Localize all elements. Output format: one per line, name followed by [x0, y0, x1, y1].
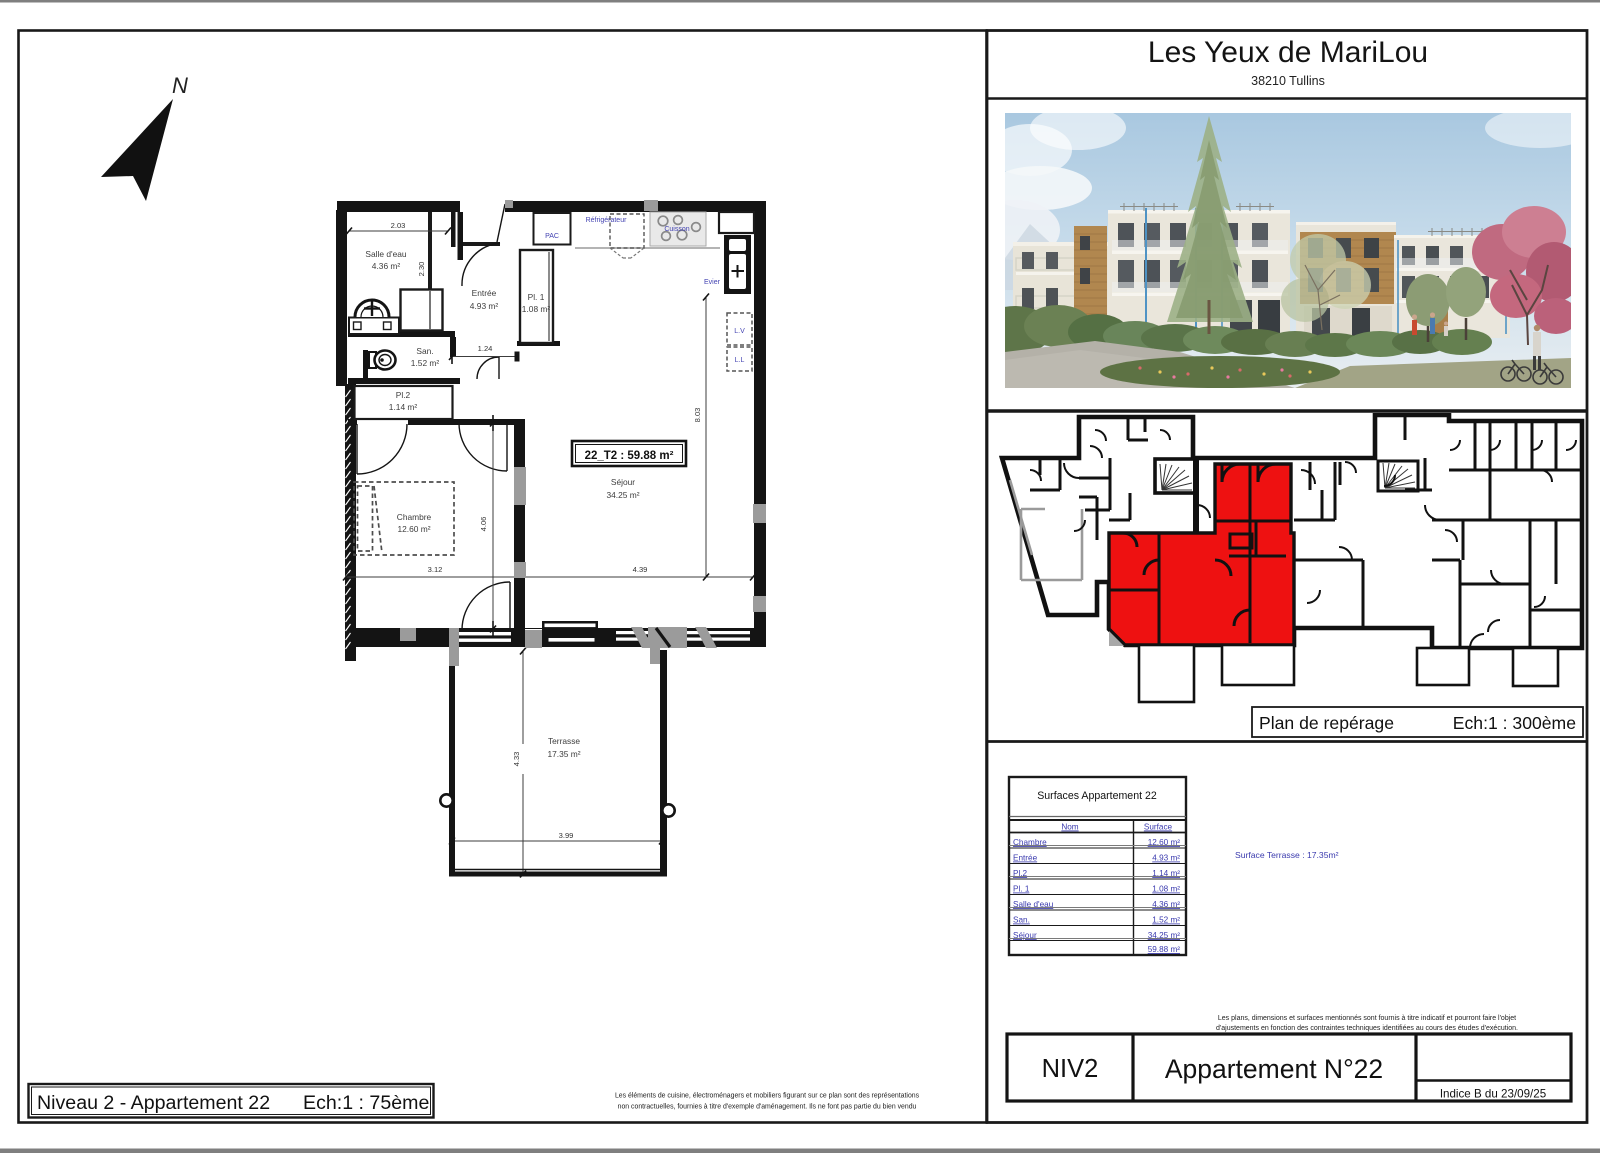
svg-text:34.25 m²: 34.25 m² [1148, 931, 1181, 940]
svg-text:Chambre: Chambre [1013, 838, 1047, 847]
svg-text:Les éléments de cuisine, élect: Les éléments de cuisine, électroménagers… [615, 1093, 920, 1100]
svg-text:L.L: L.L [735, 357, 745, 364]
svg-text:22_T2 : 59.88 m²: 22_T2 : 59.88 m² [585, 450, 674, 462]
svg-text:Pl.2: Pl.2 [396, 390, 411, 400]
svg-text:4.36 m²: 4.36 m² [1152, 900, 1180, 909]
svg-text:Indice B du 23/09/25: Indice B du 23/09/25 [1440, 1088, 1546, 1101]
svg-text:4.36 m²: 4.36 m² [372, 261, 401, 271]
svg-text:1.08 m²: 1.08 m² [522, 304, 551, 314]
svg-text:Pl. 1: Pl. 1 [528, 292, 545, 302]
svg-text:3.12: 3.12 [428, 565, 443, 574]
svg-text:d'ajustements en fonction des: d'ajustements en fonction des contrainte… [1216, 1025, 1518, 1032]
svg-text:San.: San. [1013, 916, 1030, 925]
svg-text:Salle d'eau: Salle d'eau [365, 249, 407, 259]
svg-text:Pl.2: Pl.2 [1013, 869, 1028, 878]
svg-text:Séjour: Séjour [1013, 931, 1037, 940]
svg-text:1.14 m²: 1.14 m² [389, 402, 418, 412]
svg-text:Plan de repérage: Plan de repérage [1259, 713, 1394, 733]
svg-text:Pl. 1: Pl. 1 [1013, 885, 1030, 894]
svg-text:1.08 m²: 1.08 m² [1152, 885, 1180, 894]
svg-text:Surface Terrasse : 17.35m²: Surface Terrasse : 17.35m² [1235, 850, 1339, 860]
svg-text:12.60 m²: 12.60 m² [1148, 838, 1181, 847]
svg-text:Séjour: Séjour [611, 477, 635, 487]
svg-text:12.60 m²: 12.60 m² [397, 524, 430, 534]
svg-text:Nom: Nom [1061, 823, 1078, 832]
svg-text:non contractuelles, fournies à: non contractuelles, fournies à titre d'e… [618, 1104, 917, 1111]
svg-text:Réfrigérateur: Réfrigérateur [586, 217, 628, 224]
svg-text:Entrée: Entrée [472, 288, 497, 298]
svg-text:Chambre: Chambre [397, 512, 432, 522]
svg-text:Niveau 2 - Appartement 22: Niveau 2 - Appartement 22 [37, 1092, 270, 1114]
svg-text:PAC: PAC [545, 233, 559, 240]
svg-text:4.93 m²: 4.93 m² [470, 301, 499, 311]
svg-text:8.03: 8.03 [693, 408, 702, 423]
svg-text:1.52 m²: 1.52 m² [1152, 916, 1180, 925]
svg-text:Les Yeux de MariLou: Les Yeux de MariLou [1148, 36, 1428, 69]
svg-text:4.06: 4.06 [479, 517, 488, 532]
svg-text:38210 Tullins: 38210 Tullins [1251, 74, 1325, 88]
svg-text:1.24: 1.24 [478, 344, 493, 353]
svg-text:Surfaces Appartement 22: Surfaces Appartement 22 [1037, 790, 1157, 802]
svg-text:Salle d'eau: Salle d'eau [1013, 900, 1054, 909]
svg-text:Evier: Evier [704, 279, 721, 286]
svg-text:L.V: L.V [734, 328, 745, 335]
svg-text:Terrasse: Terrasse [548, 736, 580, 746]
svg-text:Ech:1 : 300ème: Ech:1 : 300ème [1453, 713, 1576, 733]
svg-text:1.14 m²: 1.14 m² [1152, 869, 1180, 878]
svg-text:1.52 m²: 1.52 m² [411, 358, 440, 368]
svg-text:4.39: 4.39 [633, 565, 648, 574]
svg-text:Surface: Surface [1144, 823, 1173, 832]
svg-text:17.35 m²: 17.35 m² [547, 749, 580, 759]
svg-text:N: N [172, 73, 188, 98]
svg-text:NIV2: NIV2 [1042, 1055, 1099, 1083]
svg-text:Entrée: Entrée [1013, 854, 1038, 863]
svg-text:3.99: 3.99 [559, 831, 574, 840]
svg-text:Ech:1 : 75ème: Ech:1 : 75ème [303, 1092, 429, 1114]
svg-text:2.30: 2.30 [417, 262, 426, 277]
svg-text:2.03: 2.03 [391, 221, 406, 230]
svg-text:34.25 m²: 34.25 m² [606, 490, 639, 500]
svg-text:Appartement N°22: Appartement N°22 [1165, 1054, 1383, 1084]
svg-text:San.: San. [416, 346, 433, 356]
svg-text:Les plans, dimensions et surfa: Les plans, dimensions et surfaces mentio… [1218, 1015, 1516, 1022]
svg-text:4.93 m²: 4.93 m² [1152, 854, 1180, 863]
svg-text:Cuisson: Cuisson [664, 226, 689, 233]
svg-text:4.33: 4.33 [512, 752, 521, 767]
svg-text:59.88 m²: 59.88 m² [1148, 945, 1181, 954]
